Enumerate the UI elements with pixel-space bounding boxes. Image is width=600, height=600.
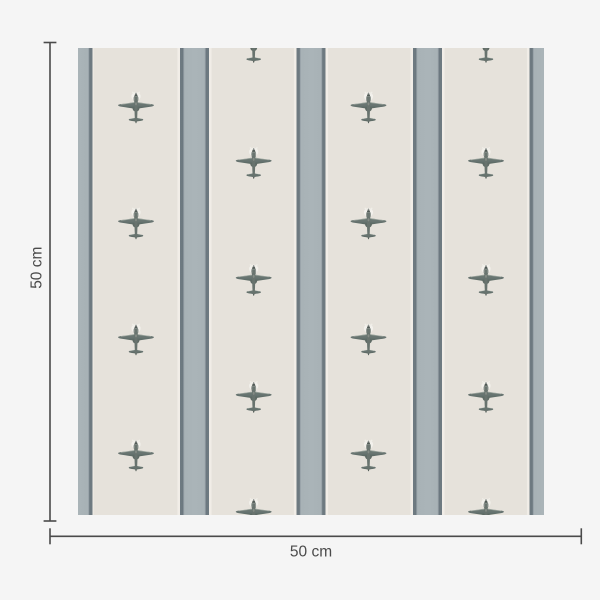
svg-text:50 cm: 50 cm	[290, 543, 332, 560]
svg-text:50 cm: 50 cm	[29, 247, 46, 289]
